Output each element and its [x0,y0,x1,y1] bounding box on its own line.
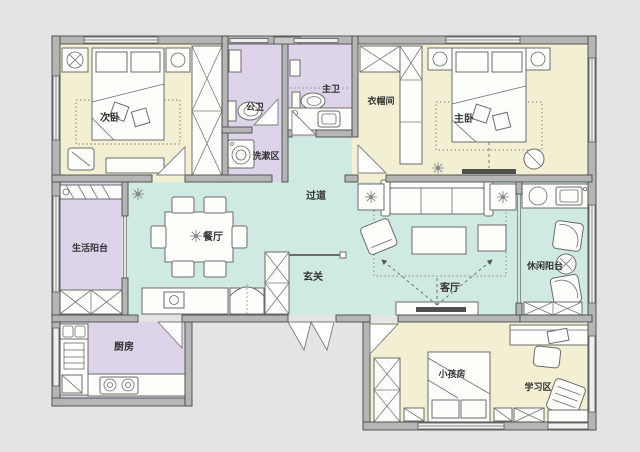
room-label-study-area: 学习区 [524,381,551,393]
plant-icon [132,188,144,200]
room-label-wash-area: 洗漱区 [252,150,279,162]
window [548,423,588,429]
balcony-chair [550,274,582,306]
room-label-service-balcony: 生活阳台 [72,242,108,254]
room-label-second-bedroom: 次卧 [100,111,120,124]
storage-cabinet-icon [514,408,544,422]
bench [106,158,164,173]
shower-fixture [229,50,241,72]
cabinet [230,284,264,314]
room-label-leisure-balcony: 休闲阳台 [526,260,563,272]
room-label-entryway: 玄关 [303,270,323,283]
sideboard [142,288,228,314]
shower-fixture [290,60,300,76]
side-table [478,225,506,251]
storage-cabinet-icon [524,302,582,315]
storage-cabinet-icon [60,290,122,314]
desk-chair [533,346,561,369]
wardrobe-icon [360,46,400,72]
room-label-kitchen: 厨房 [114,340,134,353]
wardrobe-icon [192,46,222,176]
kitchen-sink-icon [60,324,88,339]
tv-icon [462,169,516,174]
stove-icon [100,377,138,394]
entry-door-icon [288,322,334,350]
shoe-cabinet-icon [265,252,289,314]
plant-icon [190,230,202,242]
room-label-master-bathroom: 主卫 [322,83,340,95]
window [589,336,595,412]
nightstand [166,48,190,72]
window [53,328,59,386]
floor-plan-page: 次卧 公卫 主卫 衣帽间 主卧 洗漱区 过道 生活阳台 餐厅 玄关 客厅 休闲阳… [0,0,640,452]
room-label-public-bathroom: 公卫 [246,102,264,113]
toilet-icon [292,92,325,110]
nightstand [526,48,550,70]
room-label-master-bedroom: 主卧 [454,112,474,125]
window-seat [548,410,588,422]
coffee-table-icon [412,227,466,254]
planter-box [60,185,122,199]
room-label-cloakroom: 衣帽间 [367,95,394,107]
window [230,39,268,43]
wardrobe-icon [374,358,400,422]
double-bed-icon [452,48,526,142]
room-label-dining-room: 餐厅 [202,230,223,243]
room-label-living-room: 客厅 [439,281,460,294]
floor-plan-canvas: 次卧 公卫 主卫 衣帽间 主卧 洗漱区 过道 生活阳台 餐厅 玄关 客厅 休闲阳… [0,0,640,452]
window [294,39,338,43]
wardrobe-icon [400,46,422,164]
sofa-icon [381,180,493,216]
coat-hook [340,252,346,258]
room-label-corridor: 过道 [306,189,326,202]
balcony-chair [552,220,584,252]
single-bed-icon [428,352,490,422]
room-label-kids-room: 小孩房 [437,368,465,380]
double-bed-icon [92,48,164,140]
tv-icon [416,307,466,312]
laundry-counter [522,184,588,208]
nightstand [428,48,452,70]
washing-machine-icon [228,140,254,168]
desk-icon [510,325,588,345]
